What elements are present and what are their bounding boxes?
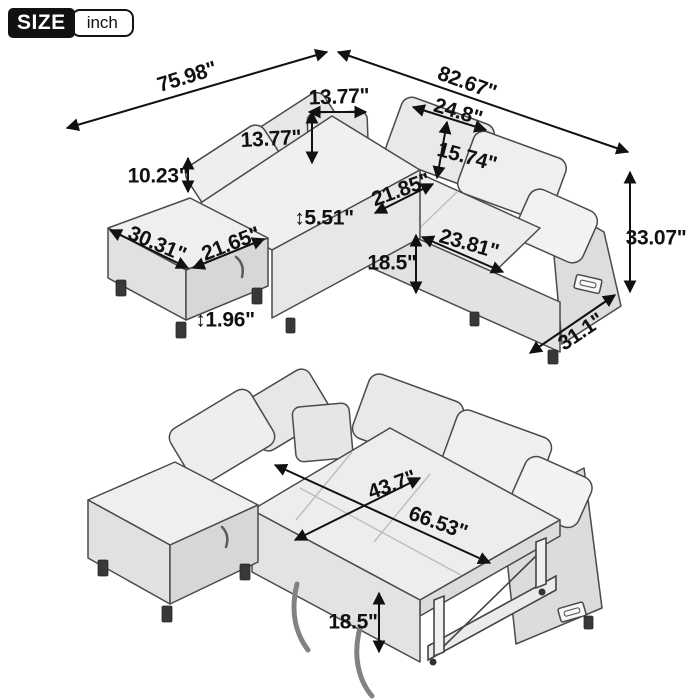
sofa-leg: [286, 318, 295, 333]
dimension-diagram: 75.98" 82.67" 13.77" 13.77" 24.8" 15.74"…: [0, 0, 700, 700]
pull-strap: [357, 628, 372, 696]
dim-label-bed-height: 18.5": [328, 611, 377, 634]
sofa-leg: [584, 616, 593, 629]
sofa-leg: [240, 564, 250, 580]
dim-label-corner-pillow-height: 13.77": [240, 126, 302, 152]
sofa-illustration-top: [108, 89, 621, 364]
sofa-leg: [252, 288, 262, 304]
sofa-leg: [548, 350, 558, 364]
size-badge: SIZE inch: [8, 8, 134, 38]
dim-label-seat-cushion-thickness: ↕5.51": [294, 207, 354, 230]
sofa-leg: [116, 280, 126, 296]
frame-foot: [539, 589, 546, 596]
unit-badge-label: inch: [71, 9, 134, 37]
dim-label-leg-height: ↕1.96": [195, 309, 255, 332]
sofa-leg: [470, 312, 479, 326]
dim-label-backrest-above-seat: 10.23": [128, 165, 189, 188]
dim-label-width-left: 75.98": [155, 57, 220, 97]
sofa-leg: [162, 606, 172, 622]
sofa-leg: [176, 322, 186, 338]
corner-pillow: [292, 403, 354, 463]
dim-label-seat-height: 18.5": [367, 252, 416, 275]
dim-label-corner-pillow-width: 13.77": [308, 84, 369, 109]
sofa-leg: [98, 560, 108, 576]
dim-label-overall-height: 33.07": [626, 227, 687, 250]
sofa-illustration-bottom: [88, 365, 602, 696]
product-dimension-sheet: SIZE inch: [0, 0, 700, 700]
frame-foot: [430, 659, 437, 666]
size-badge-label: SIZE: [8, 8, 75, 38]
